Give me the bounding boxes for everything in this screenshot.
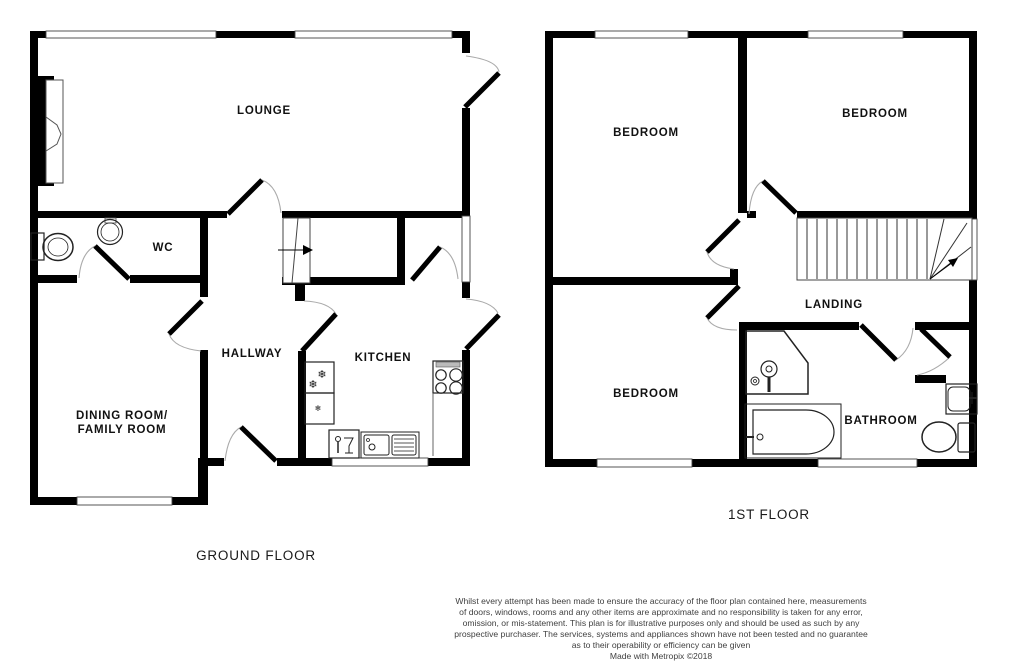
disclaimer-line: as to their operability or efficiency ca… (433, 640, 889, 651)
room-label-hallway: HALLWAY (222, 348, 283, 360)
door-dining-room (169, 301, 202, 351)
stairs-icon (797, 218, 972, 280)
door-kitchen (302, 301, 336, 351)
snowflake-icon: ❄ (308, 379, 317, 391)
room-label-bedroom-rear: BEDROOM (613, 388, 679, 400)
disclaimer-text: Whilst every attempt has been made to en… (433, 596, 889, 661)
room-label-bedroom-front-right: BEDROOM (842, 108, 908, 120)
disclaimer-line: of doors, windows, rooms and any other i… (433, 607, 889, 618)
door-bedroom-front-left (707, 220, 739, 269)
door-lounge-hallway (228, 180, 281, 214)
room-label-kitchen: KITCHEN (355, 352, 412, 364)
first-floor-plan: BEDROOM BEDROOM BEDROOM LANDING BATHROOM… (545, 31, 977, 522)
fridge-freezer-icon: ❄ ❄ ❄ (305, 362, 334, 424)
shower-icon (746, 331, 808, 394)
ground-floor-title: GROUND FLOOR (196, 548, 316, 563)
room-label-dining-line1: DINING ROOM/ (76, 410, 168, 422)
room-label-landing: LANDING (805, 299, 863, 311)
disclaimer-line: Whilst every attempt has been made to en… (433, 596, 889, 607)
room-label-bedroom-front-left: BEDROOM (613, 127, 679, 139)
floorplan-page: ❄ ❄ ❄ (0, 0, 1024, 664)
dishwasher-icon (329, 430, 359, 458)
door-wc (79, 246, 129, 279)
door-bedroom-rear (707, 286, 739, 330)
door-bedroom-front-right (749, 181, 796, 214)
door-front-entrance (225, 427, 276, 461)
room-label-bathroom: BATHROOM (844, 415, 917, 427)
first-floor-title: 1ST FLOOR (728, 507, 810, 522)
fireplace-icon (38, 76, 63, 186)
sink-drainer-icon (361, 432, 419, 458)
room-label-lounge: LOUNGE (237, 105, 291, 117)
floorplan-image: ❄ ❄ ❄ (0, 0, 1024, 664)
room-label-wc: WC (153, 242, 174, 254)
basin-icon (98, 218, 123, 245)
room-label-dining-line2: FAMILY ROOM (78, 424, 167, 436)
snowflake-icon: ❄ (315, 404, 322, 413)
door-bathroom (861, 325, 913, 360)
door-kitchen-exterior (466, 299, 499, 349)
disclaimer-line: prospective purchaser. The services, sys… (433, 629, 889, 640)
bath-icon (745, 404, 841, 458)
door-airing-cupboard (917, 329, 950, 375)
snowflake-icon: ❄ (317, 369, 326, 381)
stairs-up-icon (278, 218, 313, 283)
disclaimer-line: omission, or mis-statement. This plan is… (433, 618, 889, 629)
ground-floor-plan: ❄ ❄ ❄ (30, 31, 499, 563)
door-understairs-cupboard (412, 247, 458, 280)
metropix-credit: Made with Metropix ©2018 (433, 651, 889, 662)
toilet-icon (922, 422, 975, 452)
door-lounge-exterior (465, 56, 499, 107)
hob-icon (433, 361, 463, 456)
